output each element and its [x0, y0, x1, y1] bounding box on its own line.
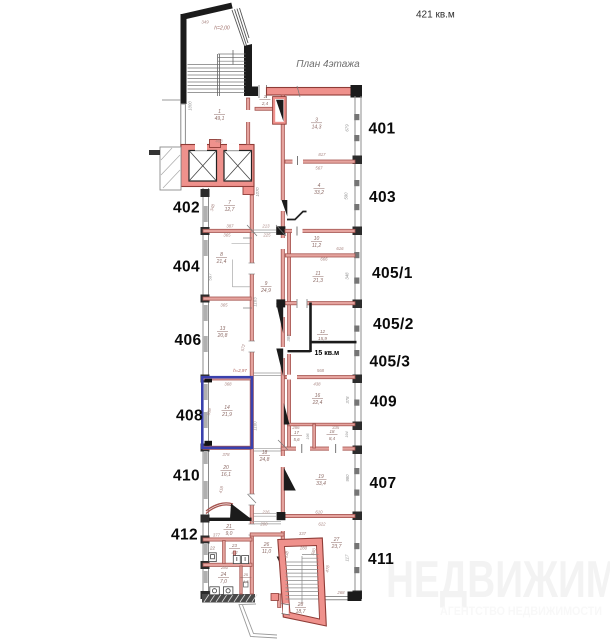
svg-text:280: 280	[220, 565, 229, 570]
svg-text:377: 377	[213, 533, 221, 538]
svg-text:401: 401	[369, 121, 396, 138]
svg-text:365: 365	[220, 303, 228, 308]
svg-text:378: 378	[222, 452, 230, 457]
svg-text:196: 196	[306, 432, 310, 439]
svg-text:17: 17	[294, 430, 299, 435]
svg-text:23,7: 23,7	[331, 544, 342, 550]
svg-text:33,4: 33,4	[316, 481, 326, 487]
svg-text:1070: 1070	[255, 187, 260, 197]
svg-text:622: 622	[318, 522, 326, 527]
svg-text:24,8: 24,8	[259, 457, 270, 463]
svg-text:33,2: 33,2	[314, 190, 324, 196]
svg-text:335: 335	[332, 425, 340, 430]
svg-text:49,1: 49,1	[215, 116, 225, 122]
svg-text:412: 412	[171, 527, 198, 544]
svg-text:349: 349	[201, 20, 209, 25]
svg-text:616: 616	[336, 246, 344, 251]
svg-text:368: 368	[224, 382, 232, 387]
svg-text:1000: 1000	[188, 101, 193, 111]
svg-text:365: 365	[223, 233, 231, 238]
svg-text:980: 980	[345, 474, 350, 482]
svg-text:11,0: 11,0	[262, 549, 272, 555]
svg-text:14,3: 14,3	[312, 125, 322, 131]
svg-text:286: 286	[291, 425, 300, 430]
svg-text:406: 406	[175, 332, 202, 349]
svg-text:12: 12	[320, 329, 326, 334]
svg-text:213: 213	[261, 224, 270, 229]
svg-text:22: 22	[209, 546, 215, 551]
svg-text:405/1: 405/1	[372, 265, 413, 282]
svg-text:АГЕНТСТВО НЕДВИЖИМОСТИ: АГЕНТСТВО НЕДВИЖИМОСТИ	[440, 604, 602, 618]
svg-text:408: 408	[176, 408, 203, 425]
svg-text:4,2: 4,2	[231, 550, 238, 555]
svg-text:1180: 1180	[253, 421, 258, 431]
svg-text:23: 23	[231, 543, 237, 548]
svg-text:21,4: 21,4	[216, 259, 227, 265]
svg-text:438: 438	[313, 382, 321, 387]
svg-text:200: 200	[259, 522, 268, 527]
svg-text:15,9: 15,9	[318, 336, 327, 341]
svg-text:5,6: 5,6	[293, 437, 300, 442]
svg-text:9,0: 9,0	[226, 531, 233, 537]
svg-text:21,9: 21,9	[221, 412, 232, 418]
svg-text:666: 666	[320, 257, 328, 262]
svg-text:411: 411	[368, 551, 394, 568]
svg-text:568: 568	[317, 368, 325, 373]
svg-text:194: 194	[345, 431, 349, 437]
svg-text:610: 610	[315, 510, 323, 515]
svg-text:421 кв.м: 421 кв.м	[416, 10, 455, 21]
svg-text:590: 590	[343, 192, 348, 200]
svg-text:1183: 1183	[253, 297, 258, 307]
svg-text:План 4этажа: План 4этажа	[296, 59, 360, 70]
svg-text:117: 117	[345, 554, 350, 561]
svg-text:21,3: 21,3	[312, 278, 323, 284]
svg-text:2: 2	[263, 94, 267, 99]
svg-text:478: 478	[325, 564, 331, 572]
svg-text:НЕДВИЖИМ: НЕДВИЖИМ	[386, 551, 610, 609]
svg-text:7,0: 7,0	[220, 579, 227, 585]
svg-text:409: 409	[370, 394, 397, 411]
svg-text:226: 226	[261, 510, 270, 515]
svg-text:12,7: 12,7	[225, 207, 235, 213]
svg-text:410: 410	[173, 468, 200, 485]
svg-text:488: 488	[215, 139, 223, 144]
svg-text:385: 385	[286, 334, 291, 342]
svg-text:404: 404	[173, 259, 200, 276]
svg-text:h=2,00: h=2,00	[214, 26, 230, 32]
svg-text:679: 679	[345, 124, 350, 132]
svg-text:22,4: 22,4	[312, 400, 323, 406]
svg-text:567: 567	[315, 166, 323, 171]
svg-text:1,5: 1,5	[243, 579, 249, 584]
svg-text:11,2: 11,2	[312, 243, 322, 249]
svg-text:348: 348	[345, 272, 350, 280]
svg-text:2,4: 2,4	[261, 101, 269, 106]
svg-text:817: 817	[318, 152, 326, 157]
svg-text:337: 337	[299, 531, 307, 536]
svg-text:268: 268	[336, 590, 345, 595]
svg-text:16,1: 16,1	[221, 472, 231, 478]
svg-text:597: 597	[208, 273, 213, 281]
svg-text:405/2: 405/2	[373, 316, 414, 333]
svg-text:403: 403	[369, 189, 396, 206]
svg-text:405/3: 405/3	[370, 354, 411, 371]
svg-text:402: 402	[173, 200, 200, 217]
svg-text:378: 378	[345, 396, 350, 404]
svg-text:225: 225	[262, 233, 271, 238]
svg-text:8,4: 8,4	[329, 436, 336, 441]
svg-text:24,9: 24,9	[260, 288, 271, 294]
svg-text:387: 387	[226, 224, 234, 229]
svg-text:15 кв.м: 15 кв.м	[315, 350, 340, 357]
svg-text:h=2,97: h=2,97	[233, 368, 247, 373]
svg-text:25: 25	[243, 572, 249, 577]
svg-text:407: 407	[370, 475, 397, 492]
svg-text:280: 280	[299, 546, 308, 551]
svg-text:20,8: 20,8	[217, 333, 228, 339]
svg-text:18,7: 18,7	[296, 609, 306, 615]
